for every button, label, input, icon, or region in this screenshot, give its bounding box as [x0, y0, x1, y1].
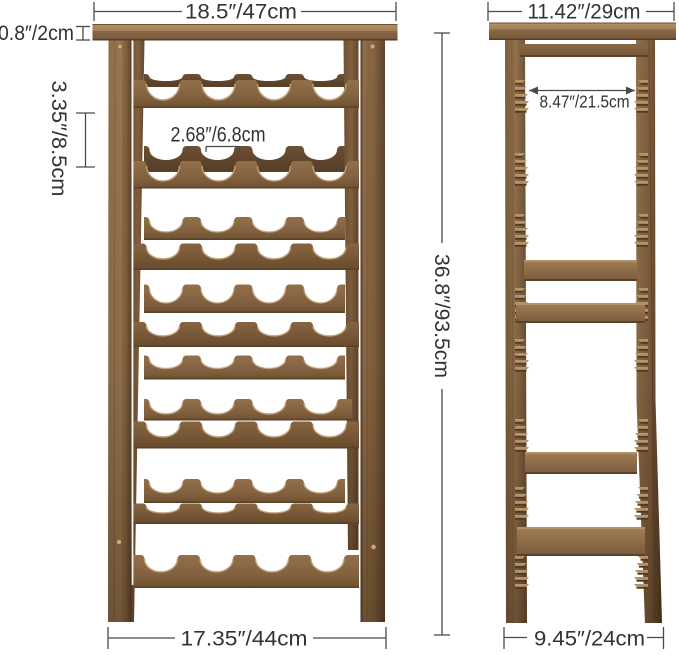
svg-text:2.68″/6.8cm: 2.68″/6.8cm: [171, 124, 266, 147]
svg-text:0.8″/2cm: 0.8″/2cm: [0, 22, 74, 45]
svg-text:9.45″/24cm: 9.45″/24cm: [534, 628, 645, 651]
svg-text:18.5″/47cm: 18.5″/47cm: [185, 1, 297, 24]
svg-text:36.8″/93.5cm: 36.8″/93.5cm: [430, 254, 453, 378]
svg-text:8.47″/21.5cm: 8.47″/21.5cm: [540, 92, 630, 112]
svg-text:3.35″/8.5cm: 3.35″/8.5cm: [47, 81, 70, 197]
svg-text:11.42″/29cm: 11.42″/29cm: [528, 1, 641, 24]
svg-text:17.35″/44cm: 17.35″/44cm: [181, 628, 308, 651]
